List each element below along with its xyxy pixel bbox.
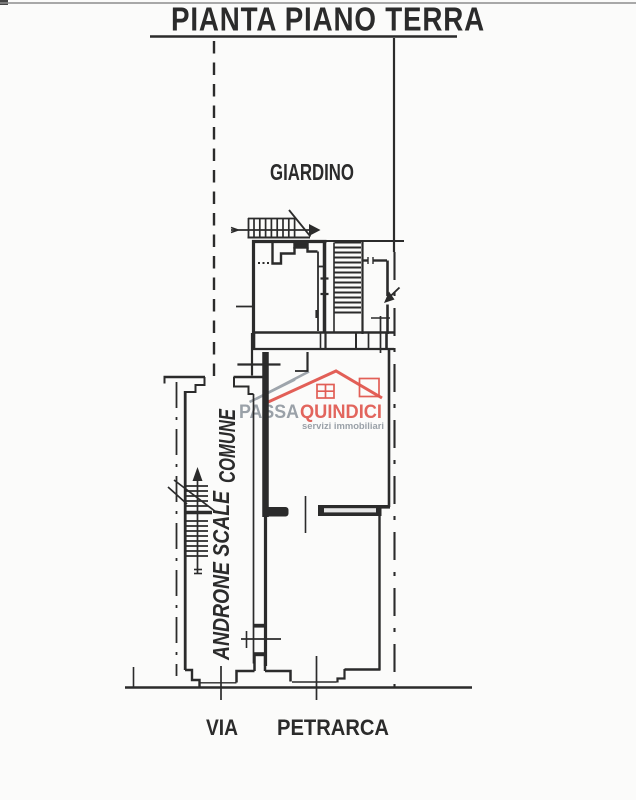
svg-text:PASSA: PASSA [239,401,299,423]
svg-text:servizi immobiliari: servizi immobiliari [302,421,384,431]
svg-text:VIA: VIA [206,715,238,740]
svg-text:ANDRONE SCALE: ANDRONE SCALE [208,490,234,660]
svg-text:PIANTA PIANO TERRA: PIANTA PIANO TERRA [171,2,485,39]
svg-text:QUINDICI: QUINDICI [300,401,382,423]
svg-text:PETRARCA: PETRARCA [277,715,389,740]
svg-text:GIARDINO: GIARDINO [270,159,354,185]
svg-text:COMUNE: COMUNE [214,409,240,483]
